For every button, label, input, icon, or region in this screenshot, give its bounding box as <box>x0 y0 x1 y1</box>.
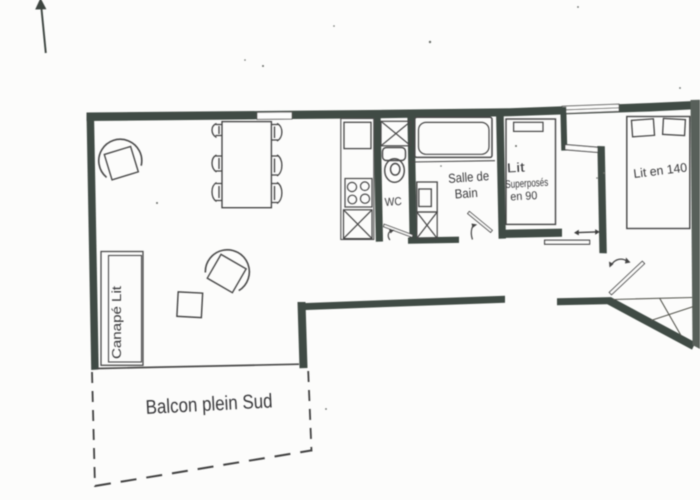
svg-text:Lit en 140: Lit en 140 <box>633 160 688 180</box>
svg-text:Superposés: Superposés <box>505 177 549 191</box>
svg-text:en 90: en 90 <box>510 190 538 203</box>
svg-text:Balcon plein Sud: Balcon plein Sud <box>145 390 273 419</box>
svg-text:Salle de: Salle de <box>448 168 490 186</box>
svg-text:Canapé Lit: Canapé Lit <box>109 286 124 359</box>
svg-text:Lit: Lit <box>506 160 525 176</box>
svg-text:WC: WC <box>384 196 402 209</box>
svg-text:Bain: Bain <box>454 185 478 202</box>
